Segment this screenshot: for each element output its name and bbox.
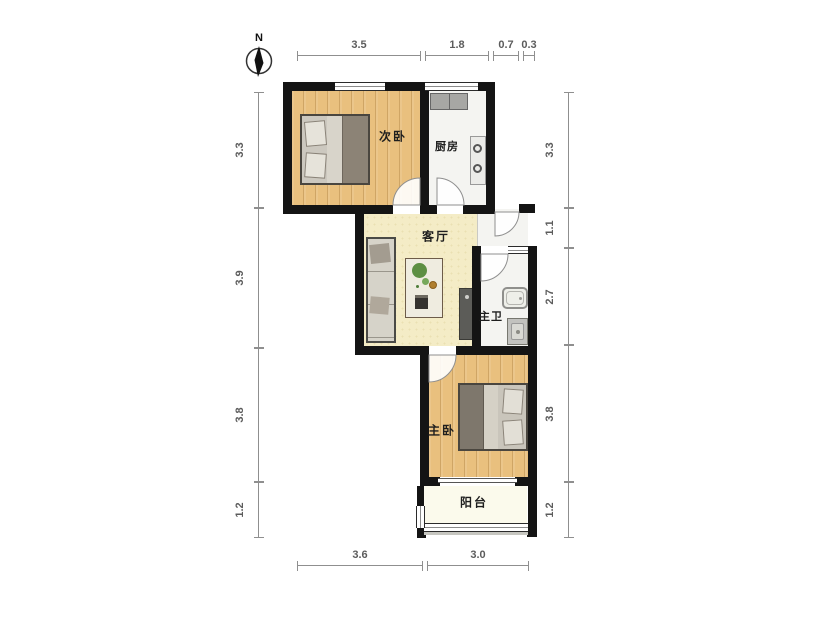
entry-hall-floor <box>477 209 528 246</box>
dim-segment: 3.3 <box>258 92 259 208</box>
dim-value: 3.8 <box>234 407 246 422</box>
compass-north-label: N <box>255 32 263 44</box>
window <box>425 82 478 91</box>
dim-value: 1.1 <box>544 220 556 235</box>
hall-living-divider <box>477 213 478 246</box>
dim-value: 3.5 <box>351 39 366 51</box>
kitchen-cabinet <box>430 93 468 110</box>
room-label-master-bathroom: 主卫 <box>479 308 503 324</box>
dim-segment: 1.2 <box>258 482 259 538</box>
dim-segment: 3.0 <box>427 565 529 566</box>
wall <box>472 246 481 355</box>
bathtub-drain <box>519 297 522 300</box>
wall <box>527 527 537 537</box>
dim-value: 1.2 <box>544 502 556 517</box>
dim-segment: 3.3 <box>568 92 569 208</box>
wall <box>420 477 440 486</box>
dim-value: 3.8 <box>544 406 556 421</box>
wall <box>283 205 393 214</box>
north-arrow-icon <box>243 44 277 82</box>
pillow <box>304 120 327 147</box>
bed-sheet <box>484 385 498 449</box>
wall <box>486 82 495 214</box>
bathtub <box>502 287 528 309</box>
dim-segment: 2.7 <box>568 248 569 345</box>
stove-burner <box>473 164 482 173</box>
room-label-secondary-bedroom: 次卧 <box>379 128 407 145</box>
balcony-window <box>424 523 528 532</box>
stove-burner <box>473 144 482 153</box>
dim-segment: 0.3 <box>523 55 535 56</box>
wall <box>456 346 537 355</box>
pillow <box>502 388 524 414</box>
wall <box>420 346 429 486</box>
sofa-cushion <box>369 243 391 264</box>
dim-segment: 1.8 <box>425 55 489 56</box>
wall <box>355 205 364 355</box>
bed-sheet <box>327 116 342 183</box>
bed-master <box>458 383 528 451</box>
bed-duvet <box>460 385 484 449</box>
dim-segment: 1.2 <box>568 482 569 538</box>
wall <box>283 82 292 214</box>
dim-value: 3.6 <box>352 549 367 561</box>
dim-value: 3.0 <box>470 549 485 561</box>
coffee-table <box>405 258 443 318</box>
window <box>416 506 425 528</box>
room-label-kitchen: 厨房 <box>435 138 459 154</box>
kitchen-counter <box>470 136 486 185</box>
washing-machine-knob <box>516 330 520 334</box>
sofa-cushion <box>369 296 389 315</box>
bed-duvet <box>342 116 368 183</box>
floor-plan: 次卧 厨房 客厅 主卫 主卧 阳台 N 3.5 1.8 0.7 0.3 3.6 … <box>0 0 828 621</box>
wall <box>417 486 424 507</box>
window <box>508 246 528 254</box>
dim-value: 1.8 <box>449 39 464 51</box>
dim-segment: 3.9 <box>258 208 259 348</box>
dim-segment: 3.5 <box>297 55 421 56</box>
decor-bowl <box>429 281 437 289</box>
decor-tray <box>415 295 428 309</box>
sofa <box>366 237 396 343</box>
tv-cabinet-knob <box>465 295 469 299</box>
dim-segment: 3.8 <box>568 345 569 482</box>
dim-value: 1.2 <box>234 502 246 517</box>
room-label-master-bedroom: 主卧 <box>428 422 456 439</box>
dim-value: 3.9 <box>234 270 246 285</box>
balcony-sliding-door <box>438 478 517 483</box>
washing-machine <box>507 318 528 345</box>
dim-segment: 1.1 <box>568 208 569 248</box>
dim-segment: 3.8 <box>258 348 259 482</box>
dim-value: 0.3 <box>521 39 536 51</box>
dim-value: 3.3 <box>544 142 556 157</box>
tv-cabinet <box>459 288 473 340</box>
dim-value: 3.3 <box>234 142 246 157</box>
room-label-living-room: 客厅 <box>422 228 450 245</box>
dim-segment: 3.6 <box>297 565 423 566</box>
pillow <box>304 152 327 178</box>
room-label-balcony: 阳台 <box>460 494 488 511</box>
dim-value: 2.7 <box>544 289 556 304</box>
wall <box>355 346 429 355</box>
pillow <box>502 419 524 445</box>
wall <box>528 246 537 486</box>
wall <box>420 91 429 205</box>
wall <box>519 204 535 213</box>
bed-secondary <box>300 114 370 185</box>
window <box>335 82 385 91</box>
wall <box>420 205 437 214</box>
dim-value: 0.7 <box>498 39 513 51</box>
plant <box>412 263 427 278</box>
dim-segment: 0.7 <box>493 55 519 56</box>
